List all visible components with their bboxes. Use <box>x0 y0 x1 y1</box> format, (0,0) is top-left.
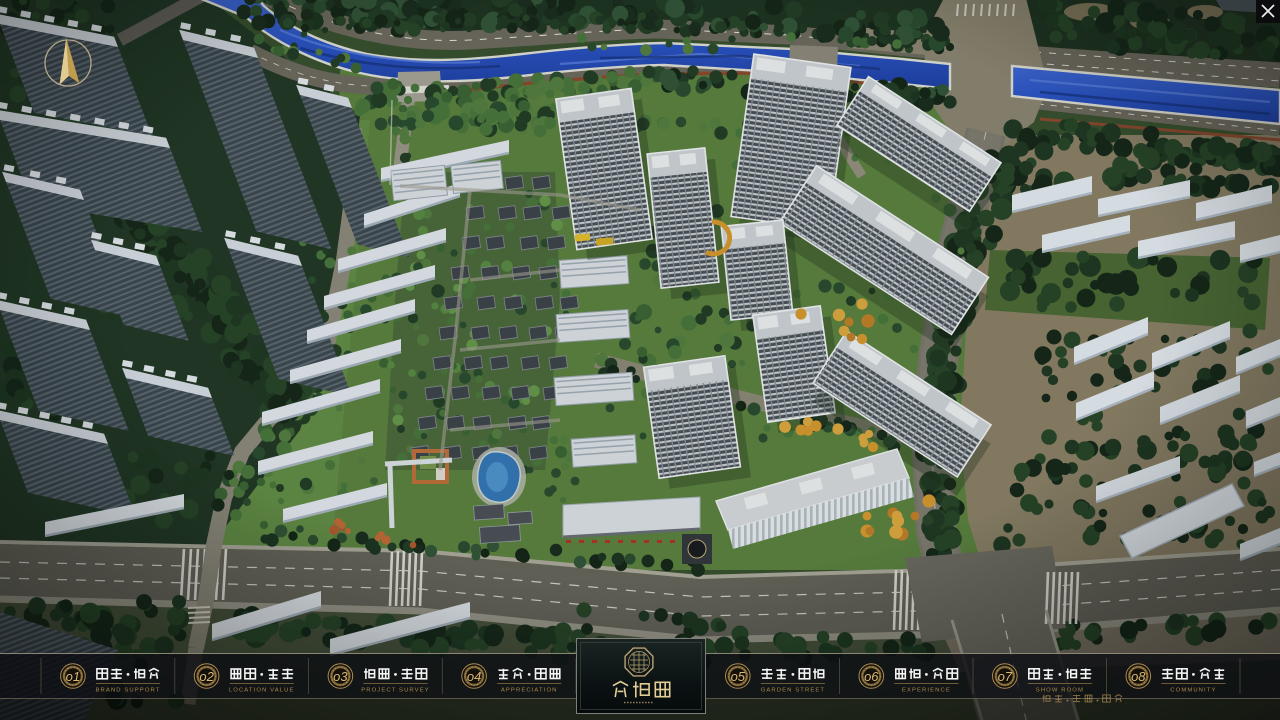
svg-text:SHOW ROOM: SHOW ROOM <box>1036 688 1084 694</box>
svg-text:APPRECIATION: APPRECIATION <box>501 688 558 694</box>
svg-text:o5: o5 <box>731 669 746 684</box>
svg-text:LOCATION VALUE: LOCATION VALUE <box>229 688 295 694</box>
svg-text:o1: o1 <box>66 669 80 684</box>
svg-text:BRAND SUPPORT: BRAND SUPPORT <box>96 688 161 694</box>
svg-text:o6: o6 <box>864 669 879 684</box>
svg-text:PROJECT SURVEY: PROJECT SURVEY <box>361 688 430 694</box>
svg-text:o2: o2 <box>199 669 214 684</box>
svg-text:COMMUNITY: COMMUNITY <box>1170 688 1216 694</box>
svg-text:o4: o4 <box>467 669 481 684</box>
svg-text:o3: o3 <box>333 669 348 684</box>
svg-text:o7: o7 <box>998 669 1013 684</box>
svg-text:GARDEN STREET: GARDEN STREET <box>761 688 825 694</box>
svg-text:EXPERIENCE: EXPERIENCE <box>902 688 951 694</box>
svg-text:o8: o8 <box>1131 669 1146 684</box>
